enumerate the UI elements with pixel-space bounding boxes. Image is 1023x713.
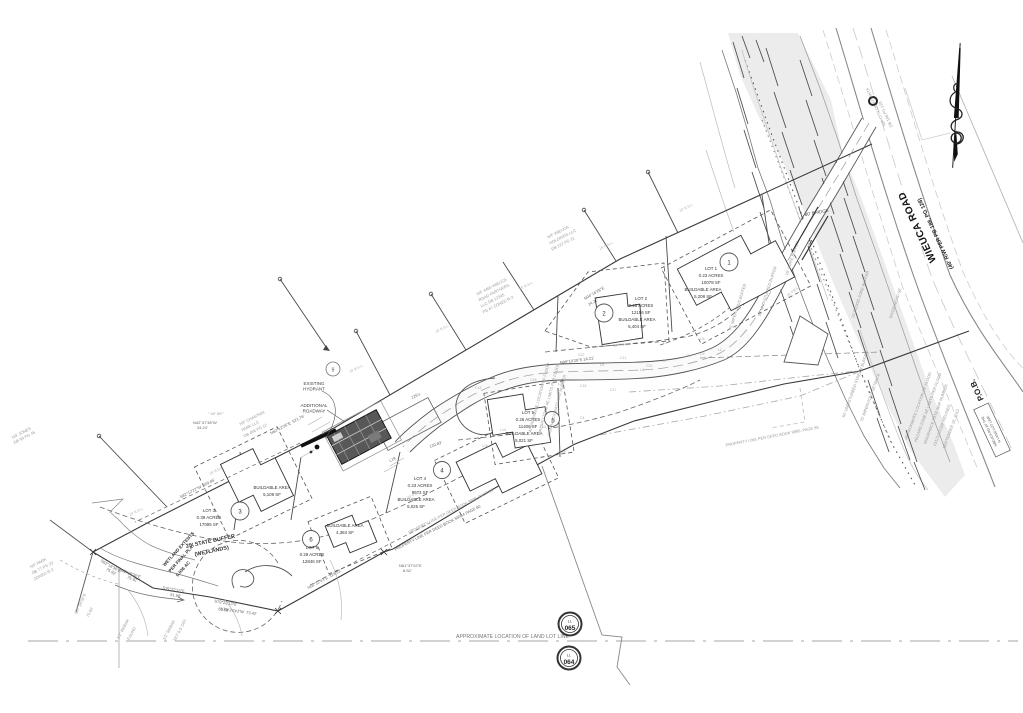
svg-text:L17: L17 bbox=[558, 382, 564, 386]
svg-text:C13: C13 bbox=[475, 386, 481, 390]
svg-text:34.24': 34.24' bbox=[197, 425, 208, 430]
svg-text:L3: L3 bbox=[663, 341, 667, 345]
svg-text:064: 064 bbox=[564, 659, 575, 666]
svg-text:LL: LL bbox=[568, 619, 573, 624]
svg-text:C12: C12 bbox=[578, 353, 584, 357]
svg-text:8.52': 8.52' bbox=[403, 568, 412, 573]
svg-text:C11: C11 bbox=[620, 356, 626, 360]
svg-text:LL: LL bbox=[567, 653, 572, 658]
svg-text:C17: C17 bbox=[610, 388, 616, 392]
svg-text:ADDITIONAL: ADDITIONAL bbox=[300, 403, 328, 408]
svg-text:C8: C8 bbox=[686, 354, 691, 358]
svg-text:C16: C16 bbox=[580, 384, 586, 388]
svg-text:L13: L13 bbox=[540, 425, 546, 429]
svg-text:APPROXIMATE LOCATION OF LAND L: APPROXIMATE LOCATION OF LAND LOT LINE bbox=[456, 634, 570, 640]
svg-text:L9: L9 bbox=[662, 359, 666, 363]
svg-text:L8: L8 bbox=[600, 363, 604, 367]
svg-text:L4: L4 bbox=[640, 368, 644, 372]
svg-text:C15: C15 bbox=[530, 378, 536, 382]
svg-text:C10: C10 bbox=[646, 364, 652, 368]
svg-text:EXISTING: EXISTING bbox=[303, 381, 325, 386]
svg-text:C5: C5 bbox=[700, 337, 705, 341]
svg-text:L2: L2 bbox=[735, 325, 739, 329]
svg-text:C9: C9 bbox=[700, 352, 705, 356]
svg-text:065: 065 bbox=[565, 625, 576, 632]
svg-text:C4: C4 bbox=[580, 416, 585, 420]
svg-text:" 40' 50'": " 40' 50'" bbox=[208, 411, 224, 416]
svg-text:9: 9 bbox=[332, 368, 335, 374]
svg-text:L2: L2 bbox=[718, 348, 722, 352]
svg-text:L16: L16 bbox=[482, 444, 488, 448]
svg-text:L15: L15 bbox=[560, 450, 566, 454]
svg-text:ROADWAY: ROADWAY bbox=[303, 409, 326, 414]
svg-text:L14: L14 bbox=[500, 428, 506, 432]
svg-text:HYDRANT: HYDRANT bbox=[303, 387, 325, 392]
